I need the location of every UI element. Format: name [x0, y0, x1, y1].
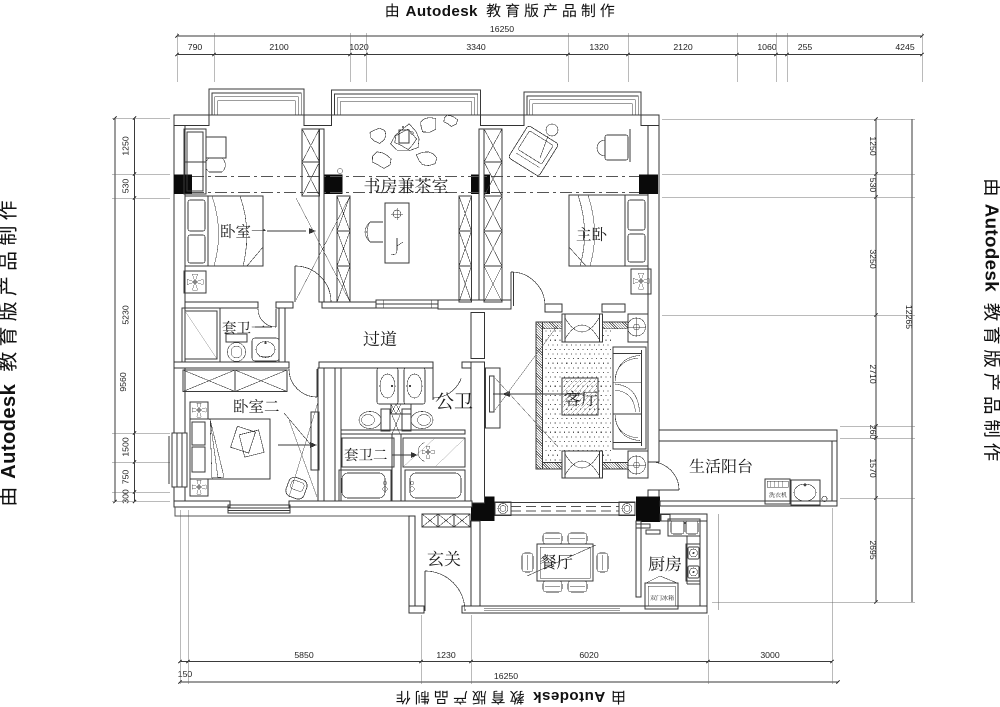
- svg-text:5230: 5230: [121, 305, 131, 324]
- svg-text:Autodesk: Autodesk: [533, 688, 606, 705]
- svg-text:1250: 1250: [121, 136, 131, 155]
- svg-text:750: 750: [121, 470, 131, 485]
- svg-text:260: 260: [868, 425, 878, 440]
- svg-text:790: 790: [188, 42, 203, 52]
- svg-text:1250: 1250: [868, 136, 878, 155]
- svg-text:Autodesk: Autodesk: [406, 3, 479, 20]
- svg-text:2695: 2695: [868, 540, 878, 559]
- svg-text:2100: 2100: [269, 42, 288, 52]
- svg-text:530: 530: [868, 178, 878, 193]
- svg-text:9560: 9560: [118, 372, 128, 391]
- svg-text:Autodesk: Autodesk: [982, 204, 1000, 293]
- svg-text:1320: 1320: [589, 42, 608, 52]
- svg-text:4245: 4245: [895, 42, 914, 52]
- svg-text:1230: 1230: [436, 650, 455, 660]
- svg-text:2120: 2120: [673, 42, 692, 52]
- svg-text:12265: 12265: [904, 305, 914, 329]
- svg-text:3250: 3250: [868, 249, 878, 268]
- svg-text:Autodesk: Autodesk: [0, 383, 20, 479]
- svg-text:255: 255: [798, 42, 813, 52]
- svg-text:3000: 3000: [760, 650, 779, 660]
- svg-text:6020: 6020: [579, 650, 598, 660]
- svg-text:530: 530: [121, 179, 131, 194]
- svg-text:1570: 1570: [868, 458, 878, 477]
- svg-text:5850: 5850: [294, 650, 313, 660]
- svg-text:3340: 3340: [466, 42, 485, 52]
- svg-text:1060: 1060: [757, 42, 776, 52]
- svg-text:1500: 1500: [121, 437, 131, 456]
- svg-text:16250: 16250: [494, 671, 518, 681]
- svg-text:2710: 2710: [868, 364, 878, 383]
- svg-text:16250: 16250: [490, 24, 514, 34]
